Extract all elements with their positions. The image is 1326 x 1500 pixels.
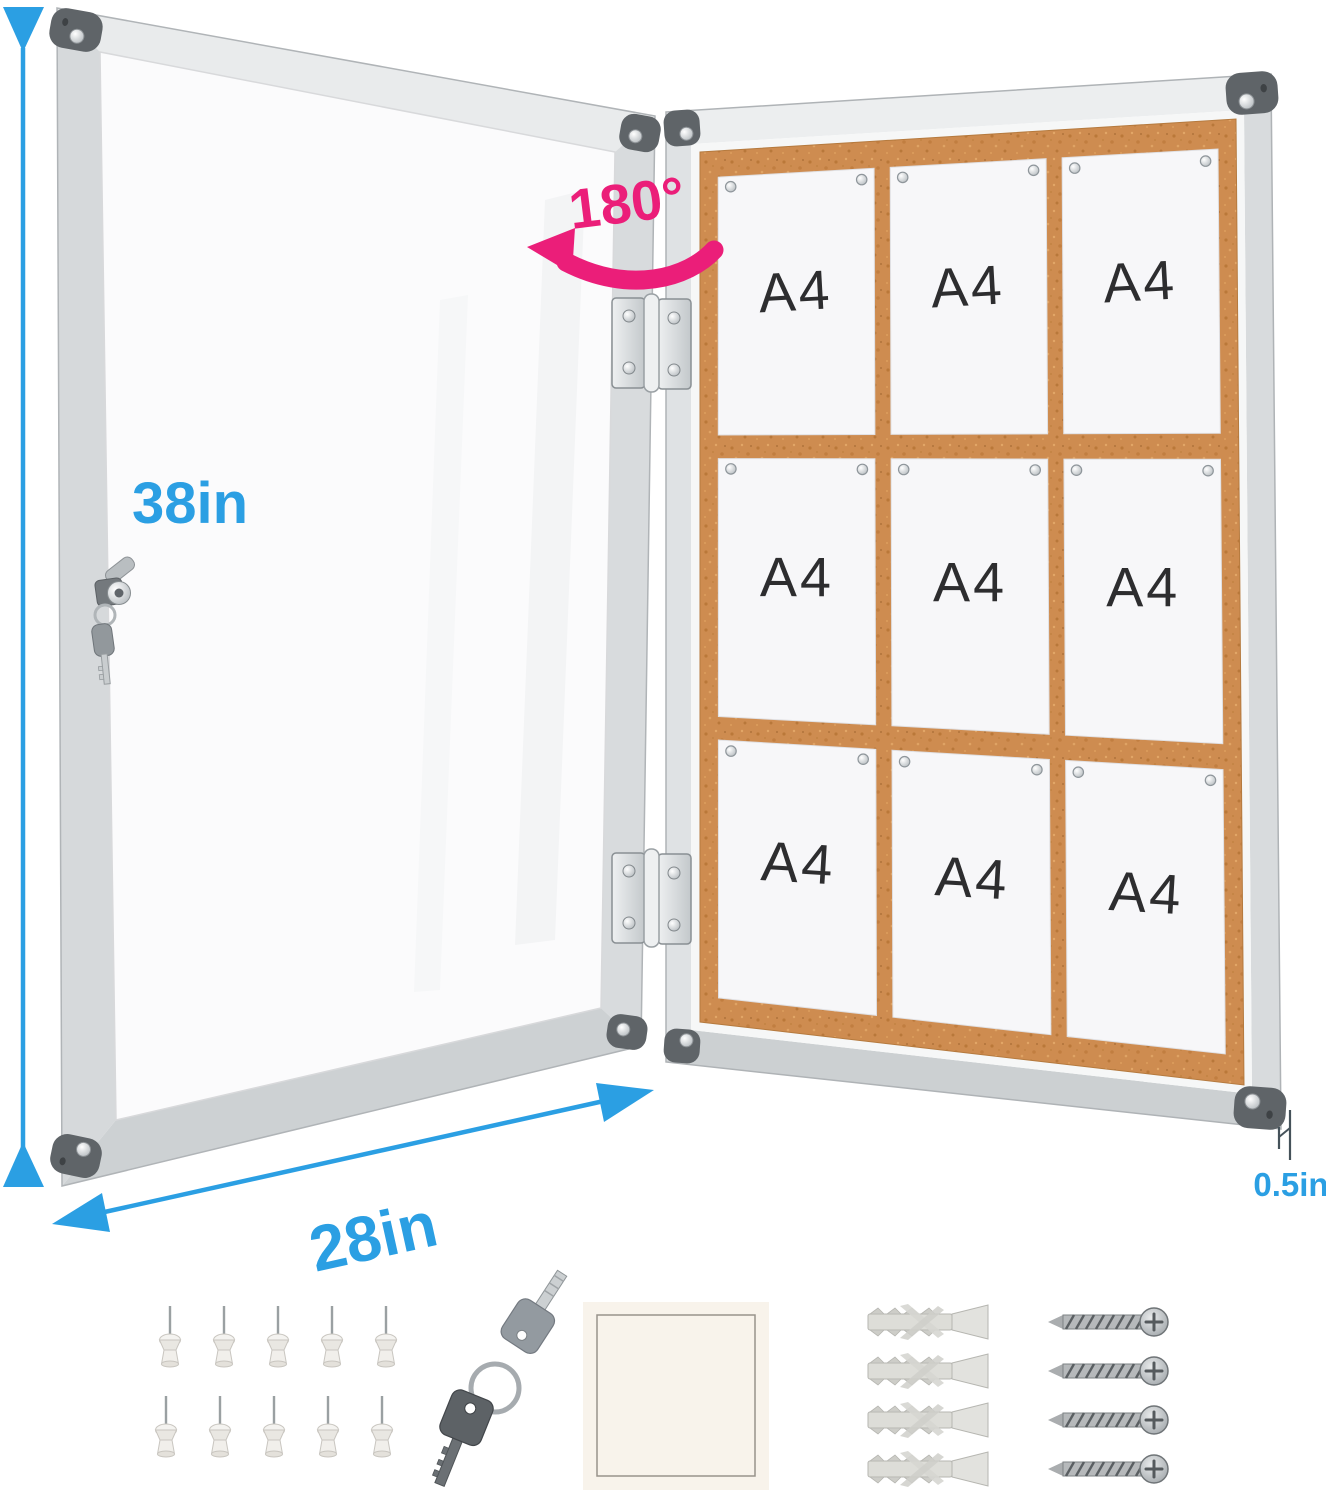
push-pin — [160, 1306, 181, 1367]
hinge-screw — [668, 867, 680, 879]
paper-pin — [726, 464, 736, 474]
a4-paper-label: A4 — [1101, 249, 1178, 315]
hinge-bottom — [612, 849, 691, 947]
wall-anchor — [868, 1451, 988, 1487]
height-label: 38in — [132, 471, 248, 536]
hinge-screw — [668, 919, 680, 931]
paper-pin — [1030, 465, 1040, 475]
paper-pin — [1200, 156, 1210, 166]
paper-pin — [899, 464, 909, 474]
paper-pin — [1028, 165, 1038, 175]
paper-pin — [1032, 765, 1042, 775]
width-arrow-left — [52, 1193, 110, 1232]
cap-screw — [1244, 1093, 1260, 1109]
a4-paper-label: A4 — [1106, 556, 1180, 618]
a4-paper-label: A4 — [757, 258, 834, 324]
hinge-screw — [623, 310, 635, 322]
height-arrow-top — [3, 7, 44, 52]
wall-anchor-set — [868, 1304, 988, 1487]
paper-pin — [898, 172, 908, 182]
height-arrow-bottom — [3, 1142, 44, 1187]
a4-paper: A4 — [1064, 459, 1223, 744]
wall-anchor — [868, 1353, 988, 1389]
hinge-screw — [623, 362, 635, 374]
push-pin-set — [156, 1306, 397, 1457]
paper-pin — [726, 746, 736, 756]
paper-pin — [1070, 163, 1080, 173]
paper-pin — [858, 754, 868, 764]
paper-pin — [1073, 767, 1083, 777]
screw — [1048, 1357, 1168, 1385]
push-pin — [318, 1396, 339, 1457]
a4-paper: A4 — [1062, 149, 1220, 434]
push-pin — [214, 1306, 235, 1367]
product-diagram: A4A4A4A4A4A4A4A4A4 38in 28in — [0, 0, 1326, 1500]
paper-pin — [857, 174, 867, 184]
push-pin — [322, 1306, 343, 1367]
depth-label: 0.5in — [1253, 1166, 1326, 1203]
screw — [1048, 1406, 1168, 1434]
key-head — [437, 1387, 496, 1448]
a4-paper-label: A4 — [1107, 859, 1185, 926]
a4-paper: A4 — [890, 159, 1047, 435]
paper-pin — [857, 464, 867, 474]
width-arrow-right — [596, 1083, 654, 1122]
a4-paper-label: A4 — [933, 551, 1007, 613]
key-dark — [419, 1387, 496, 1492]
a4-paper-label: A4 — [760, 546, 834, 608]
a4-paper: A4 — [891, 459, 1049, 735]
paper-pin — [726, 182, 736, 192]
paper-pin — [899, 757, 909, 767]
board-corner-cap-top-right — [1225, 70, 1280, 116]
a4-paper: A4 — [718, 459, 875, 725]
hinge-screw — [623, 917, 635, 929]
push-pin — [156, 1396, 177, 1457]
cap-screw — [679, 1033, 693, 1047]
push-pin — [268, 1306, 289, 1367]
key-blade — [535, 1270, 567, 1311]
screw — [1048, 1455, 1168, 1483]
push-pin — [372, 1396, 393, 1457]
key-silver — [498, 1262, 580, 1357]
hinge-screw — [668, 312, 680, 324]
cap-screw — [1239, 93, 1255, 109]
width-label: 28in — [303, 1188, 444, 1286]
cap-screw — [679, 127, 693, 141]
board-corner-cap-bottom-left — [663, 1028, 701, 1064]
screw-set — [1048, 1308, 1168, 1483]
hinge-top — [612, 294, 691, 392]
hanging-key-head — [91, 623, 115, 657]
a4-paper-label: A4 — [929, 253, 1006, 319]
a4-paper: A4 — [1066, 760, 1226, 1054]
push-pin — [376, 1306, 397, 1367]
product-diagram-stage: A4A4A4A4A4A4A4A4A4 38in 28in — [0, 0, 1326, 1500]
adhesive-square — [583, 1302, 769, 1490]
screw — [1048, 1308, 1168, 1336]
hinge-screw — [668, 364, 680, 376]
a4-paper-label: A4 — [759, 829, 837, 896]
paper-pin — [1205, 775, 1215, 785]
paper-pin — [1071, 465, 1081, 475]
lock-keyhole — [115, 589, 124, 598]
key-set — [419, 1262, 580, 1493]
a4-paper: A4 — [892, 750, 1051, 1034]
push-pin — [210, 1396, 231, 1457]
paper-pin — [1203, 466, 1213, 476]
board-corner-cap-bottom-right — [1233, 1085, 1288, 1131]
board-panel: A4A4A4A4A4A4A4A4A4 — [663, 70, 1288, 1131]
a4-paper-label: A4 — [933, 844, 1011, 911]
hinge-screw — [623, 865, 635, 877]
door-corner-cap-top-left — [47, 6, 105, 54]
a4-paper: A4 — [718, 740, 876, 1015]
wall-anchor — [868, 1304, 988, 1340]
board-corner-cap-top-left — [663, 109, 701, 147]
wall-anchor — [868, 1402, 988, 1438]
a4-paper: A4 — [718, 168, 875, 435]
push-pin — [264, 1396, 285, 1457]
